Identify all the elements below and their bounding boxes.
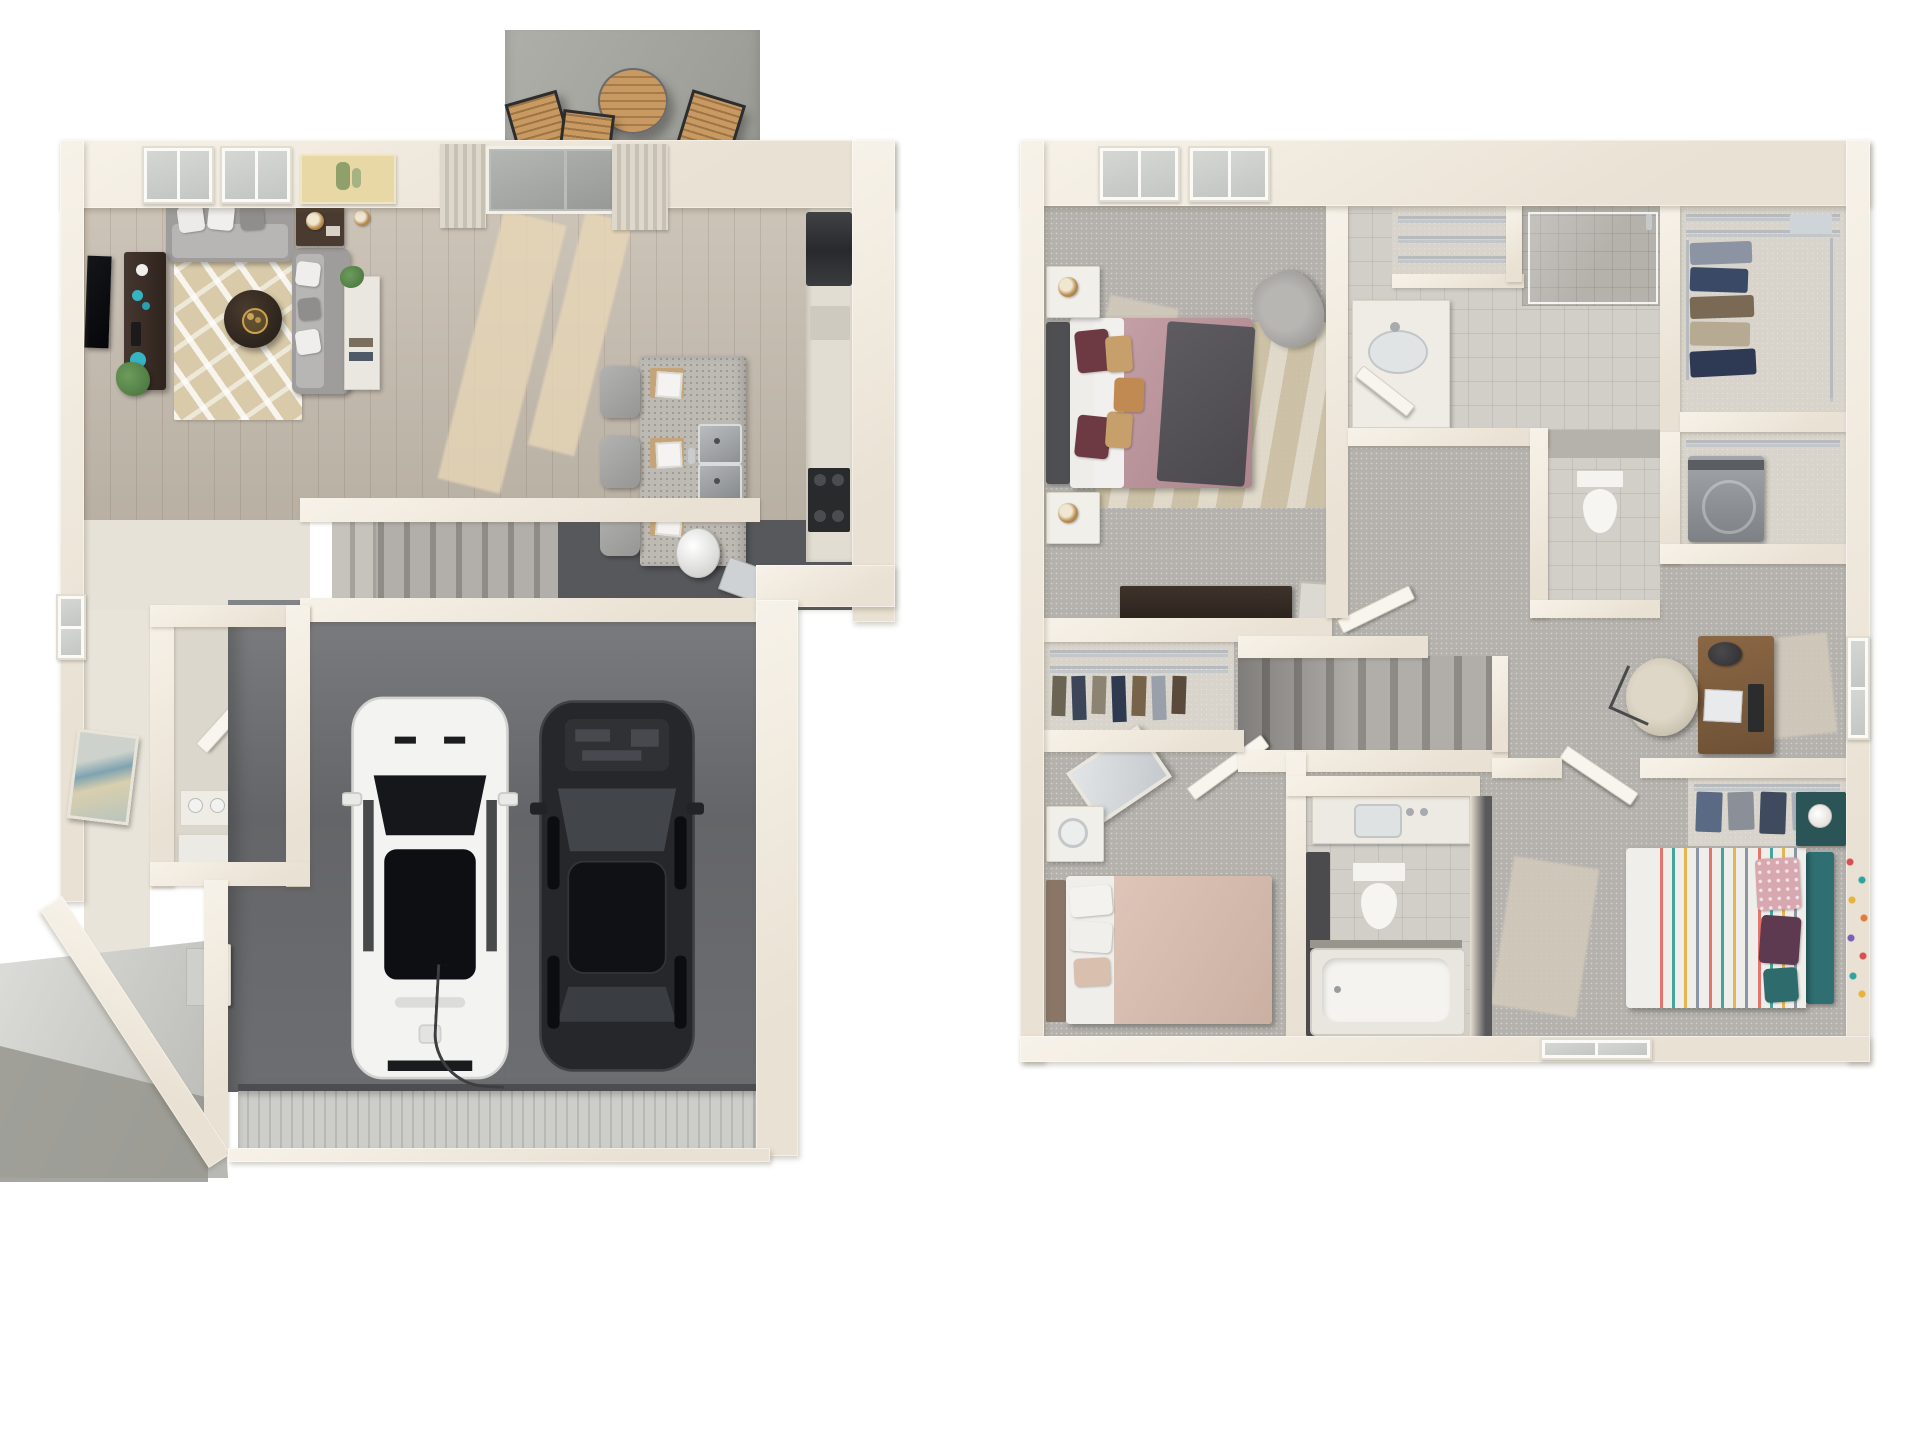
window-pane xyxy=(1103,151,1138,197)
throw-blanket xyxy=(1157,321,1256,487)
closet-side-wall xyxy=(1506,206,1522,282)
storage-bin xyxy=(1695,792,1722,833)
stair-landing-wall xyxy=(1492,656,1508,752)
laundry-wall-south xyxy=(1660,544,1846,564)
wc-wall-south xyxy=(1530,600,1660,618)
master-window xyxy=(1188,146,1270,202)
window-pane xyxy=(1193,151,1228,197)
hanging-clothes xyxy=(1689,348,1756,377)
floor-plan-render xyxy=(0,0,1920,1440)
washer-controls xyxy=(1688,460,1764,470)
vanity-sink xyxy=(1368,330,1428,374)
closet-column-wall xyxy=(1660,206,1680,432)
pillow-plum xyxy=(1758,915,1801,966)
linen-closet-wall xyxy=(1392,274,1524,288)
decor-tray xyxy=(1058,818,1088,848)
dresser xyxy=(1120,586,1292,620)
window-pane xyxy=(1851,641,1865,687)
wire-shelf xyxy=(1694,784,1840,787)
master-window xyxy=(1098,146,1180,202)
vanity-faucet xyxy=(1390,322,1400,332)
master-bath-divider xyxy=(1326,206,1348,618)
tile-wainscot xyxy=(1548,430,1660,458)
wire-shelf xyxy=(1398,216,1506,219)
pillow-floral xyxy=(1755,857,1802,911)
south-window xyxy=(1540,1038,1652,1060)
hanging-clothes xyxy=(1071,676,1087,720)
toilet2-tank xyxy=(1352,862,1406,882)
hanging-clothes xyxy=(1690,321,1750,346)
window-pane xyxy=(1231,151,1266,197)
pillow-white xyxy=(1069,921,1113,954)
storage-bin xyxy=(1727,792,1754,831)
bathtub-basin xyxy=(1322,958,1450,1022)
confetti-wall-decals xyxy=(1844,852,1872,1008)
exterior-wall-west-2f xyxy=(1020,140,1044,1062)
bed-headboard xyxy=(1046,322,1070,484)
desk-lamp xyxy=(1708,642,1742,666)
wc-wall-west xyxy=(1530,428,1548,618)
hanging-clothes xyxy=(1690,267,1749,293)
bed2-headboard xyxy=(1046,880,1066,1022)
bath2-bed3-divider xyxy=(1470,796,1492,1038)
wire-shelf xyxy=(1398,256,1506,259)
stair-wall-north2 xyxy=(1238,636,1428,658)
hanging-clothes xyxy=(1171,676,1186,714)
bath2-wall-north xyxy=(1286,776,1480,796)
bath2-faucet xyxy=(1420,808,1428,816)
pillow-white xyxy=(1069,884,1113,918)
folded-stack xyxy=(1790,214,1832,234)
lamp-white xyxy=(1808,804,1832,828)
hanging-clothes xyxy=(1131,676,1146,716)
tub-drain xyxy=(1334,986,1341,993)
hanging-clothes xyxy=(1690,241,1753,265)
wire-shelf xyxy=(1050,650,1228,653)
exterior-wall-south-2f xyxy=(1020,1036,1870,1062)
wire-shelf xyxy=(1686,440,1840,443)
hanging-clothes xyxy=(1690,295,1755,319)
hanging-clothes xyxy=(1151,676,1167,720)
stairwell-shading xyxy=(1238,656,1506,752)
pillow-tan xyxy=(1105,411,1133,449)
pillow-camel xyxy=(1113,377,1144,412)
wire-shelf xyxy=(1398,236,1506,239)
lamp xyxy=(1058,277,1078,297)
bed3-headboard xyxy=(1806,852,1834,1004)
pillow-tan xyxy=(1105,335,1133,373)
duvet-blush xyxy=(1114,876,1272,1024)
hanging-clothes xyxy=(1111,676,1127,722)
bed3-wall-north-left xyxy=(1492,758,1562,778)
hanging-clothes xyxy=(1091,676,1106,714)
shower-glass xyxy=(1528,212,1658,304)
closet-rod xyxy=(1686,240,1689,380)
bathtub-surround xyxy=(1310,940,1462,948)
window-pane xyxy=(1545,1043,1595,1055)
window-pane xyxy=(1851,690,1865,736)
closet-wall-south xyxy=(1680,412,1846,432)
bed2-closet-wall xyxy=(1044,730,1244,752)
bath-wall-south xyxy=(1348,428,1548,446)
bed3-wall-north-right xyxy=(1640,758,1846,778)
pillow-blush xyxy=(1073,957,1110,987)
pillow-teal xyxy=(1763,967,1799,1003)
stair-wall-south2 xyxy=(1238,750,1508,772)
monitor xyxy=(1748,684,1764,732)
bath2-faucet xyxy=(1406,808,1414,816)
window-pane xyxy=(1598,1043,1648,1055)
office-window xyxy=(1846,636,1870,740)
wire-shelf xyxy=(1050,666,1228,669)
lamp xyxy=(1058,503,1078,523)
toilet-tank xyxy=(1576,470,1624,488)
window-pane xyxy=(1141,151,1176,197)
storage-bin xyxy=(1759,792,1786,835)
laptop xyxy=(1703,689,1743,723)
bath2-sink xyxy=(1354,804,1402,838)
second-floor-plan xyxy=(0,0,1920,1440)
shower-head xyxy=(1646,214,1652,230)
wire-shelf-side xyxy=(1830,238,1833,398)
hanging-clothes xyxy=(1051,676,1066,716)
washer-door xyxy=(1702,480,1756,534)
